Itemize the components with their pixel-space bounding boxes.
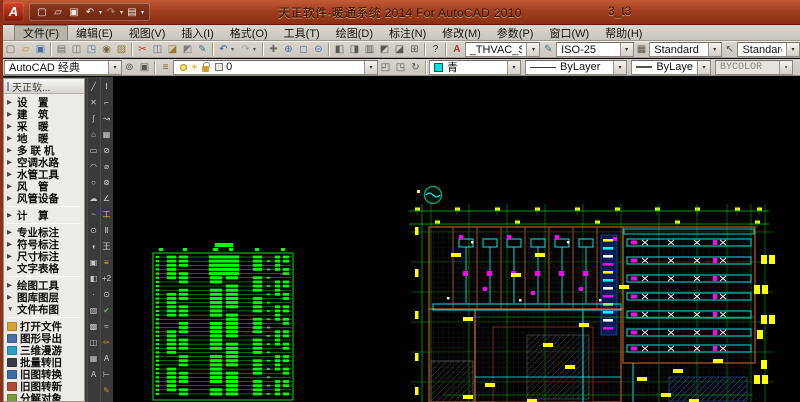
undo-icon[interactable]: ↶ <box>216 43 231 57</box>
toolbar-separator <box>50 43 52 56</box>
polyline-icon[interactable]: ∫ <box>88 110 99 126</box>
table-style-combo[interactable]: Standard ▾ <box>649 42 722 57</box>
publish-icon[interactable]: ◳ <box>84 43 99 57</box>
chevron-down-icon[interactable]: ▾ <box>526 43 539 56</box>
standard-toolbar: ▢▱▣▤◫◳◉▧✂◫◪◩✎↶▾↷▾✚⊕◻⊖◧◨▥◩◪⊞? A _THVAC_S … <box>0 41 800 58</box>
tool-palettes-icon[interactable]: ▥ <box>362 43 377 57</box>
layer-properties-icon[interactable]: ≡ <box>158 60 173 74</box>
color-combo[interactable]: 青 ▾ <box>429 60 521 75</box>
markup-icon[interactable]: ◪ <box>392 43 407 57</box>
open-file-icon <box>7 322 17 331</box>
workspace-combo[interactable]: AutoCAD 经典 ▾ <box>4 60 122 75</box>
text-style-value: _THVAC_S <box>470 44 523 56</box>
layer-combo[interactable]: ☀ 0 ▾ <box>173 60 378 75</box>
chevron-down-icon[interactable]: ▾ <box>231 46 238 53</box>
double-line-dim-icon[interactable]: Ⅱ <box>101 222 112 238</box>
text-style-icon[interactable]: A <box>451 43 463 57</box>
chevron-right-icon: ▶ <box>7 98 14 106</box>
elevation-dim-icon[interactable]: ≡ <box>101 254 112 270</box>
aligned-dim-icon[interactable]: ⌐ <box>101 94 112 110</box>
diameter-dim-icon[interactable]: ⌀ <box>101 158 112 174</box>
sheetset-icon[interactable]: ◩ <box>377 43 392 57</box>
palette-item[interactable]: ▶风管设备 <box>4 192 84 204</box>
menu-item-3[interactable]: 视图(V) <box>121 25 174 40</box>
chevron-right-icon: ▶ <box>7 228 14 236</box>
layer-previous-icon[interactable]: ◳ <box>393 60 408 74</box>
batch-convert-icon <box>7 358 17 367</box>
circle-icon[interactable]: ○ <box>88 174 99 190</box>
window-border <box>0 0 3 402</box>
palette-item[interactable]: ▼文件布图 <box>4 303 84 315</box>
workspace-value: AutoCAD 经典 <box>9 60 104 75</box>
toolbar-separator <box>425 61 427 74</box>
chevron-right-icon: ▶ <box>7 146 14 154</box>
chevron-right-icon: ▶ <box>7 134 14 142</box>
grid-dim-icon[interactable]: ▦ <box>101 126 112 142</box>
draw-toolbar-vertical: ╱✕∫⌂▭◠○☁~⊙◖▣◧·▨▩◫▦A <box>87 77 99 402</box>
redo-icon[interactable]: ↷ <box>238 43 253 57</box>
mleader-style-value: Standard <box>742 44 782 56</box>
designcenter-icon[interactable]: ◨ <box>347 43 362 57</box>
mleader-style-icon[interactable]: ↖ <box>724 43 736 57</box>
dim-style-value: ISO-25 <box>561 44 616 56</box>
etransmit-icon[interactable]: ◉ <box>99 43 114 57</box>
palette-item-label: 文件布图 <box>17 302 59 317</box>
match-properties-icon[interactable]: ✎ <box>195 43 210 57</box>
layers-properties-toolbar: AutoCAD 经典 ▾ ⊚▣ ≡ ☀ 0 ▾ ◰◳↻ 青 ▾ ByLayer … <box>0 59 800 76</box>
arc-dim-icon[interactable]: ↝ <box>101 110 112 126</box>
menu-item-11[interactable]: 窗口(W) <box>541 25 597 40</box>
table-style-icon[interactable]: ▦ <box>636 43 648 57</box>
menu-item-12[interactable]: 帮助(H) <box>597 25 650 40</box>
quickcalc-icon[interactable]: ⊞ <box>407 43 422 57</box>
chevron-down-icon[interactable]: ▾ <box>364 61 377 74</box>
new-icon[interactable]: ▢ <box>3 43 18 57</box>
palette-grip-icon <box>7 82 9 91</box>
insert-block-icon[interactable]: ▣ <box>88 254 99 270</box>
floor-plan <box>409 187 775 402</box>
dim-style-icon[interactable]: ✎ <box>542 43 554 57</box>
line-icon[interactable]: ╱ <box>88 78 99 94</box>
plot-style-value: BYCOLOR <box>720 62 775 73</box>
palette-title: 天正软... <box>12 79 50 94</box>
rectangle-icon[interactable]: ▭ <box>88 142 99 158</box>
layer-on-bulb-icon[interactable] <box>180 64 187 71</box>
toolbar-separator <box>131 43 133 56</box>
zoom-previous-icon[interactable]: ⊖ <box>311 43 326 57</box>
workspace-settings-icon[interactable]: ⊚ <box>122 60 137 74</box>
chevron-right-icon: ▶ <box>7 170 14 178</box>
linear-dim-icon[interactable]: Ⅰ <box>101 78 112 94</box>
linetype-combo[interactable]: ByLayer ▾ <box>525 60 627 75</box>
point-icon[interactable]: · <box>88 286 99 302</box>
help-icon[interactable]: ? <box>428 43 443 57</box>
drawing-canvas[interactable] <box>113 77 800 402</box>
axis-label-icon[interactable]: ⊘ <box>101 142 112 158</box>
layer-name-value: 0 <box>226 61 360 73</box>
palette-item-label: 计 算 <box>17 208 49 223</box>
chevron-down-icon[interactable]: ▾ <box>708 43 721 56</box>
palette-item[interactable]: 分解对象 <box>4 392 84 402</box>
email-icon[interactable]: ▧ <box>114 43 129 57</box>
chevron-right-icon: ▶ <box>7 122 14 130</box>
multiline-text-icon[interactable]: A <box>88 366 99 382</box>
color-swatch <box>434 63 443 72</box>
arc-icon[interactable]: ◠ <box>88 158 99 174</box>
riser-diagram <box>153 243 293 400</box>
edit-dim-icon[interactable]: ✏ <box>101 334 112 350</box>
palette-item[interactable]: ▶计 算 <box>4 209 84 221</box>
convert-old-drawing-icon <box>7 370 17 379</box>
title-bar[interactable]: A ▢▱▣↶▾↷▾▤▾ 天正软件-暖通系统 2014 For AutoCAD 2… <box>0 0 800 25</box>
ellipse-arc-icon[interactable]: ◖ <box>88 238 99 254</box>
chevron-down-icon[interactable]: ▾ <box>697 61 710 74</box>
region-icon[interactable]: ◫ <box>88 334 99 350</box>
menu-bar: 文件(F)编辑(E)视图(V)插入(I)格式(O)工具(T)绘图(D)标注(N)… <box>0 25 800 41</box>
properties-icon[interactable]: ◧ <box>332 43 347 57</box>
save-icon[interactable]: ▣ <box>33 43 48 57</box>
chevron-right-icon: ▶ <box>7 252 14 260</box>
add-dim-icon[interactable]: +2 <box>101 270 112 286</box>
open-icon[interactable]: ▱ <box>18 43 33 57</box>
pan-icon[interactable]: ✚ <box>266 43 281 57</box>
explode-objects-icon <box>7 394 17 402</box>
lineweight-value: ByLayer <box>656 61 693 73</box>
layer-states-icon[interactable]: ↻ <box>408 60 423 74</box>
menu-item-5[interactable]: 格式(O) <box>222 25 276 40</box>
zoom-realtime-icon[interactable]: ⊕ <box>281 43 296 57</box>
palette-item-label: 文字表格 <box>17 261 59 276</box>
gradient-icon[interactable]: ▩ <box>88 318 99 334</box>
chevron-down-icon[interactable]: ▾ <box>786 43 799 56</box>
check-dim-icon[interactable]: ✔ <box>101 302 112 318</box>
center-mark-icon[interactable]: ⊙ <box>101 286 112 302</box>
workspace-save-icon[interactable]: ▣ <box>137 60 152 74</box>
menu-item-8[interactable]: 标注(N) <box>381 25 434 40</box>
table-style-value: Standard <box>654 44 704 56</box>
wave-dim-icon[interactable]: ≈ <box>101 318 112 334</box>
menu-item-2[interactable]: 编辑(E) <box>68 25 121 40</box>
toolbar-separator <box>262 43 264 56</box>
chevron-right-icon: ▶ <box>7 211 14 219</box>
toolbar-separator <box>328 43 330 56</box>
menu-item-1[interactable]: 文件(F) <box>14 25 68 40</box>
paste-special-icon[interactable]: ◩ <box>180 43 195 57</box>
chevron-right-icon: ▶ <box>7 158 14 166</box>
zoom-window-icon[interactable]: ◻ <box>296 43 311 57</box>
menu-item-7[interactable]: 绘图(D) <box>328 25 381 40</box>
radius-dim-icon[interactable]: ⊗ <box>101 174 112 190</box>
chevron-down-icon: ▾ <box>779 61 792 74</box>
table-icon[interactable]: ▦ <box>88 350 99 366</box>
menu-item-9[interactable]: 修改(M) <box>434 25 489 40</box>
menu-item-4[interactable]: 插入(I) <box>173 25 221 40</box>
dim-style-combo[interactable]: ISO-25 ▾ <box>556 42 634 57</box>
spline-icon[interactable]: ~ <box>88 206 99 222</box>
chevron-down-icon[interactable]: ▾ <box>620 43 633 56</box>
main-area: ╱✕∫⌂▭◠○☁~⊙◖▣◧·▨▩◫▦A Ⅰ⌐↝▦⊘⌀⊗∠工Ⅱ王≡+2⊙✔≈✏A⊢… <box>0 77 800 402</box>
chevron-down-icon[interactable]: ▾ <box>108 61 121 74</box>
make-block-icon[interactable]: ◧ <box>88 270 99 286</box>
menu-item-6[interactable]: 工具(T) <box>276 25 328 40</box>
revision-cloud-icon[interactable]: ☁ <box>88 190 99 206</box>
copy-icon[interactable]: ◫ <box>150 43 165 57</box>
hatch-icon[interactable]: ▨ <box>88 302 99 318</box>
old-to-new-icon <box>7 382 17 391</box>
chevron-right-icon: ▶ <box>7 182 14 190</box>
toolbar-separator <box>445 43 447 56</box>
color-value: 青 <box>447 60 503 75</box>
plot-icon[interactable]: ▤ <box>54 43 69 57</box>
layer-lock-icon[interactable] <box>202 66 209 72</box>
layer-freeze-sun-icon[interactable]: ☀ <box>190 62 198 73</box>
palette-item[interactable]: ▶文字表格 <box>4 262 84 274</box>
lineweight-combo[interactable]: ByLayer ▾ <box>631 60 711 75</box>
plot-preview-icon[interactable]: ◫ <box>69 43 84 57</box>
multi-line-dim-icon[interactable]: 王 <box>101 238 112 254</box>
make-layer-current-icon[interactable]: ◰ <box>378 60 393 74</box>
chevron-down-icon[interactable]: ▾ <box>253 46 260 53</box>
chevron-down-icon[interactable]: ▾ <box>613 61 626 74</box>
chevron-right-icon: ▶ <box>7 110 14 118</box>
dimension-toolbar-vertical: Ⅰ⌐↝▦⊘⌀⊗∠工Ⅱ王≡+2⊙✔≈✏A⊢✎ <box>100 77 112 402</box>
cad-drawing[interactable] <box>113 77 800 402</box>
layer-color-swatch[interactable] <box>215 63 223 71</box>
ellipse-icon[interactable]: ⊙ <box>88 222 99 238</box>
polygon-icon[interactable]: ⌂ <box>88 126 99 142</box>
paste-icon[interactable]: ◪ <box>165 43 180 57</box>
angle-dim-icon[interactable]: ∠ <box>101 190 112 206</box>
export-drawing-icon <box>7 334 17 343</box>
application-window: A ▢▱▣↶▾↷▾▤▾ 天正软件-暖通系统 2014 For AutoCAD 2… <box>0 0 800 402</box>
lineweight-sample <box>636 66 652 68</box>
toolbar-separator <box>154 61 156 74</box>
toolbar-separator <box>212 43 214 56</box>
linetype-sample <box>530 67 556 68</box>
chevron-down-icon[interactable]: ▾ <box>507 61 520 74</box>
cut-icon[interactable]: ✂ <box>135 43 150 57</box>
toolbar-separator <box>424 43 426 56</box>
plot-style-combo: BYCOLOR ▾ <box>715 60 793 75</box>
chevron-right-icon: ▶ <box>7 293 14 301</box>
walkthrough-3d-icon <box>7 346 17 355</box>
mleader-style-combo[interactable]: Standard ▾ <box>737 42 800 57</box>
palette-header[interactable]: 天正软... <box>4 79 84 94</box>
chevron-down-icon: ▼ <box>7 306 14 313</box>
text-dim-icon[interactable]: A <box>101 350 112 366</box>
window-title-suffix: 3_t3 <box>608 4 631 18</box>
chevron-right-icon: ▶ <box>7 194 14 202</box>
palette-item-label: 分解对象 <box>20 391 62 402</box>
linetype-value: ByLayer <box>560 61 609 73</box>
brush-dim-icon[interactable]: ✎ <box>101 382 112 398</box>
tianzheng-palette: 天正软... ▶设 置▶建 筑▶采 暖▶地 暖▶多 联 机▶空调水路▶水管工具▶… <box>3 78 85 402</box>
menu-item-10[interactable]: 参数(P) <box>489 25 542 40</box>
chevron-right-icon: ▶ <box>7 264 14 272</box>
window-title: 天正软件-暖通系统 2014 For AutoCAD 2010 <box>0 4 800 21</box>
chevron-right-icon: ▶ <box>7 240 14 248</box>
beam-dim-icon[interactable]: 工 <box>101 206 112 222</box>
palette-item-label: 风管设备 <box>17 191 59 206</box>
text-style-combo[interactable]: _THVAC_S ▾ <box>465 42 541 57</box>
ruler-dim-icon[interactable]: ⊢ <box>101 366 112 382</box>
construction-line-icon[interactable]: ✕ <box>88 94 99 110</box>
chevron-right-icon: ▶ <box>7 281 14 289</box>
